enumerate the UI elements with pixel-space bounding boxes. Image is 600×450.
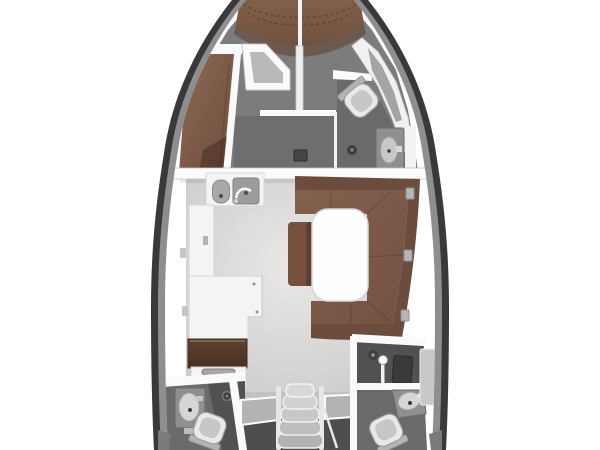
shower-partition-wall bbox=[355, 383, 421, 390]
port-tab-1 bbox=[180, 248, 186, 258]
aft-hatch-left bbox=[241, 397, 278, 425]
step-1 bbox=[286, 384, 314, 397]
v-berth-center-split bbox=[298, 0, 302, 47]
galley-wood-worktop bbox=[188, 339, 247, 368]
galley-sink-main-drain bbox=[244, 191, 248, 195]
forward-head-drain-dot bbox=[350, 148, 353, 151]
shower-glass-panel bbox=[392, 355, 413, 383]
galley-counter-handle bbox=[203, 236, 208, 245]
port-tab-2 bbox=[182, 306, 188, 316]
forward-head-side-trim bbox=[405, 126, 416, 172]
forward-cabin-floor bbox=[234, 116, 334, 172]
shower-column bbox=[381, 362, 385, 383]
shower-drain-dot bbox=[371, 353, 375, 357]
galley-sink-small-drain bbox=[219, 194, 223, 198]
forward-head-basin-drain bbox=[387, 149, 391, 153]
starboard-tab-1 bbox=[406, 188, 414, 199]
floor-plan-svg: yacht hull outline V-berth cushions at b… bbox=[0, 0, 600, 450]
galley-faucet-base bbox=[234, 199, 239, 204]
floor-plan-stage: yacht hull outline V-berth cushions at b… bbox=[0, 0, 600, 450]
forward-head-faucet bbox=[396, 146, 402, 152]
galley-sink-small bbox=[213, 180, 230, 203]
shower-head-knob bbox=[379, 356, 388, 365]
starboard-tab-2 bbox=[404, 250, 412, 261]
aft-starboard-left-wall bbox=[350, 336, 357, 450]
aft-starboard-head: aft starboard shower stall and head with… bbox=[350, 334, 437, 450]
galley-hinge-2 bbox=[256, 311, 259, 314]
centerline-wall bbox=[296, 46, 303, 112]
aft-port-drain-dot bbox=[226, 395, 229, 398]
aft-port-head: aft port head with washbasin, shower dra… bbox=[162, 372, 247, 450]
galley-hinge-1 bbox=[253, 283, 256, 286]
floor-hatch bbox=[294, 150, 307, 161]
galley-side-counter bbox=[189, 205, 214, 276]
aft-starboard-basin-drain bbox=[408, 401, 412, 405]
aft-port-faucet bbox=[196, 396, 203, 401]
shower-stall-floor bbox=[357, 342, 424, 384]
saloon-table bbox=[312, 209, 368, 301]
starboard-tab-3 bbox=[401, 310, 409, 321]
aft-port-basin-drain bbox=[188, 408, 192, 412]
